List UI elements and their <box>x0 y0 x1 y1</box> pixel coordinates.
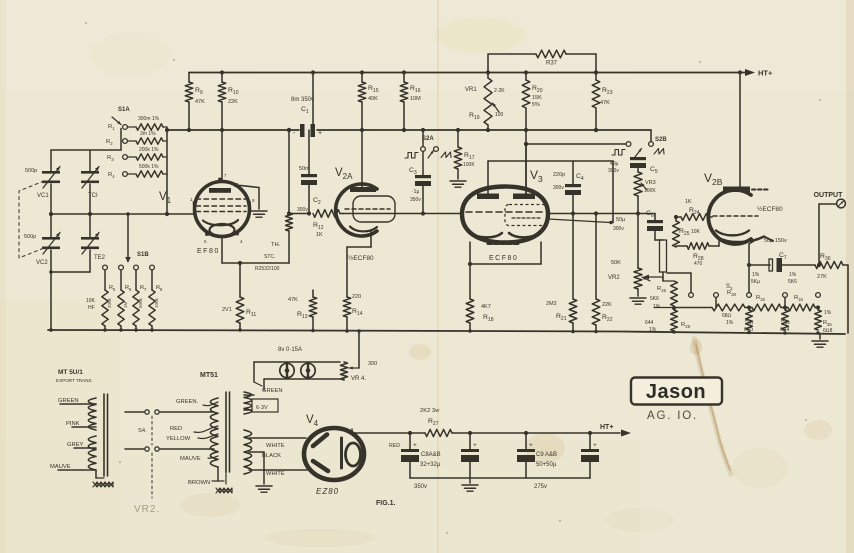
svg-text:22K: 22K <box>228 99 238 105</box>
svg-text:300v: 300v <box>297 207 308 213</box>
svg-text:1%: 1% <box>752 272 760 278</box>
svg-text:10K: 10K <box>86 298 96 304</box>
svg-text:27K: 27K <box>817 274 827 280</box>
svg-text:FIG.1.: FIG.1. <box>376 500 396 507</box>
svg-text:VR2.: VR2. <box>134 504 160 515</box>
svg-text:50K: 50K <box>611 260 621 266</box>
svg-text:R30: R30 <box>727 290 737 297</box>
svg-text:40µ: 40µ <box>610 161 619 167</box>
svg-text:300v: 300v <box>608 168 619 174</box>
svg-text:TH.: TH. <box>271 242 281 248</box>
svg-text:1K: 1K <box>316 232 323 238</box>
svg-text:32+32µ: 32+32µ <box>420 462 441 468</box>
svg-text:TE2: TE2 <box>94 255 106 261</box>
svg-text:47K: 47K <box>288 297 298 303</box>
svg-text:VC1: VC1 <box>37 193 49 199</box>
svg-text:100K: 100K <box>463 162 475 168</box>
svg-text:47K: 47K <box>600 100 610 106</box>
svg-text:1%: 1% <box>824 310 832 316</box>
svg-text:+: + <box>318 130 322 137</box>
svg-text:1%: 1% <box>789 272 797 278</box>
svg-text:MT51: MT51 <box>200 372 218 379</box>
svg-text:TCI: TCI <box>88 193 98 199</box>
svg-text:EXPORT TRANS.: EXPORT TRANS. <box>56 378 93 383</box>
svg-text:1%: 1% <box>726 320 734 326</box>
svg-text:VR3: VR3 <box>645 180 656 186</box>
svg-text:6·3V: 6·3V <box>256 405 268 411</box>
svg-text:200k 1%: 200k 1% <box>139 147 159 153</box>
svg-text:MAUVE: MAUVE <box>50 464 71 470</box>
svg-text:R35: R35 <box>823 320 832 327</box>
svg-text:STC.: STC. <box>264 254 275 260</box>
svg-text:220p: 220p <box>553 172 565 178</box>
svg-text:½ECF80: ½ECF80 <box>757 205 783 213</box>
svg-text:S2A: S2A <box>422 136 434 142</box>
svg-text:2K2 3w: 2K2 3w <box>420 408 440 414</box>
svg-text:1K: 1K <box>685 199 692 205</box>
svg-text:BROWN: BROWN <box>188 480 210 486</box>
svg-text:500k: 500k <box>138 297 143 308</box>
svg-text:+: + <box>473 442 477 449</box>
svg-text:C9 A&B: C9 A&B <box>536 452 557 458</box>
svg-text:MAUVE: MAUVE <box>180 456 201 462</box>
svg-text:10M: 10M <box>410 96 421 102</box>
svg-text:40K: 40K <box>368 96 378 102</box>
svg-text:VR 4.: VR 4. <box>351 376 366 382</box>
svg-text:470: 470 <box>694 261 703 267</box>
svg-text:300v: 300v <box>613 226 624 232</box>
svg-text:300m 1%: 300m 1% <box>138 116 160 122</box>
svg-text:HF: HF <box>88 305 95 311</box>
svg-text:PINK: PINK <box>66 421 80 427</box>
svg-text:+: + <box>529 442 533 449</box>
svg-text:VC2: VC2 <box>36 260 48 266</box>
svg-text:300v: 300v <box>553 185 564 191</box>
svg-text:S4.: S4. <box>138 428 147 434</box>
svg-text:R5: R5 <box>109 285 116 292</box>
svg-text:5K6: 5K6 <box>650 296 659 302</box>
svg-text:HT+: HT+ <box>600 424 613 431</box>
svg-text:500p: 500p <box>24 234 36 240</box>
svg-text:15K: 15K <box>532 95 542 101</box>
svg-text:R8: R8 <box>156 285 163 292</box>
svg-text:S1A: S1A <box>118 107 130 113</box>
svg-text:R3: R3 <box>107 155 114 162</box>
svg-text:5%: 5% <box>532 102 540 108</box>
svg-text:R26: R26 <box>657 286 667 293</box>
svg-text:R1: R1 <box>108 124 115 131</box>
svg-text:300: 300 <box>368 361 377 367</box>
svg-text:VR2: VR2 <box>608 275 620 281</box>
svg-text:1M: 1M <box>123 301 128 308</box>
svg-text:50m: 50m <box>299 166 310 172</box>
svg-text:R7: R7 <box>140 285 147 292</box>
svg-text:500p: 500p <box>25 168 37 174</box>
svg-text:GREEN.: GREEN. <box>176 399 199 405</box>
svg-text:ECF80: ECF80 <box>489 255 518 262</box>
svg-text:RED: RED <box>170 426 182 432</box>
svg-text:4K7: 4K7 <box>481 304 491 310</box>
svg-text:Jason: Jason <box>646 381 706 403</box>
svg-text:50+50µ: 50+50µ <box>536 462 557 468</box>
svg-text:500k 1%: 500k 1% <box>139 164 159 170</box>
svg-text:BLACK: BLACK <box>262 453 281 459</box>
svg-text:R29: R29 <box>681 322 691 329</box>
svg-text:R33: R33 <box>781 318 790 325</box>
svg-text:R32: R32 <box>756 295 766 302</box>
svg-text:8m 350v: 8m 350v <box>291 97 314 103</box>
svg-text:R34: R34 <box>794 295 804 302</box>
svg-text:3m 1%: 3m 1% <box>140 131 156 137</box>
svg-text:R6: R6 <box>125 285 132 292</box>
svg-text:YELLOW: YELLOW <box>166 436 191 442</box>
svg-text:10K: 10K <box>691 229 701 235</box>
svg-text:50µ: 50µ <box>616 217 626 223</box>
svg-text:C8A&B: C8A&B <box>421 452 441 458</box>
svg-text:100k: 100k <box>154 297 159 308</box>
svg-text:RED: RED <box>389 443 400 449</box>
svg-text:R2532/100: R2532/100 <box>255 266 280 272</box>
svg-text:2M2: 2M2 <box>546 301 557 307</box>
svg-text:GREEN: GREEN <box>58 398 79 404</box>
svg-text:8v 0·15A: 8v 0·15A <box>278 347 302 353</box>
svg-text:WHITE: WHITE <box>266 471 285 477</box>
svg-text:AG. IO.: AG. IO. <box>647 410 698 422</box>
svg-text:R4: R4 <box>108 172 115 179</box>
svg-text:22K: 22K <box>602 302 612 308</box>
svg-text:VR1: VR1 <box>465 87 477 93</box>
svg-text:EZ80: EZ80 <box>316 487 339 496</box>
svg-text:R31: R31 <box>745 318 754 325</box>
svg-text:275v: 275v <box>534 484 547 490</box>
svg-text:GREY: GREY <box>67 442 84 448</box>
svg-text:50µ 150v: 50µ 150v <box>764 238 787 244</box>
svg-text:EF80: EF80 <box>197 248 220 255</box>
svg-text:644: 644 <box>645 320 654 326</box>
svg-text:·1µ: ·1µ <box>412 189 419 195</box>
svg-text:S2B: S2B <box>655 137 667 143</box>
svg-text:S1B: S1B <box>137 252 149 258</box>
svg-text:MT 5U/1: MT 5U/1 <box>58 369 83 376</box>
svg-text:R2: R2 <box>106 139 113 146</box>
svg-text:5K6: 5K6 <box>788 279 797 285</box>
svg-text:OUTPUT: OUTPUT <box>814 192 844 199</box>
svg-text:+: + <box>593 442 597 449</box>
svg-text:HT+: HT+ <box>758 69 773 78</box>
svg-text:100K: 100K <box>644 188 656 194</box>
svg-text:GREEN: GREEN <box>262 388 283 394</box>
svg-text:WHITE: WHITE <box>266 443 285 449</box>
svg-text:68Ω: 68Ω <box>722 313 732 319</box>
svg-text:½ECF80: ½ECF80 <box>348 254 374 262</box>
svg-text:47K: 47K <box>195 99 205 105</box>
svg-text:350v: 350v <box>410 197 421 203</box>
svg-text:350v: 350v <box>414 484 427 490</box>
svg-text:100: 100 <box>495 112 504 118</box>
svg-text:2·2K: 2·2K <box>494 88 505 94</box>
svg-text:220: 220 <box>352 294 361 300</box>
svg-text:2V1: 2V1 <box>222 307 232 313</box>
svg-text:330k: 330k <box>107 297 112 308</box>
svg-text:5Kµ: 5Kµ <box>751 279 760 285</box>
svg-text:+: + <box>413 442 417 449</box>
svg-text:1%: 1% <box>653 304 661 310</box>
svg-text:R37: R37 <box>546 61 558 67</box>
